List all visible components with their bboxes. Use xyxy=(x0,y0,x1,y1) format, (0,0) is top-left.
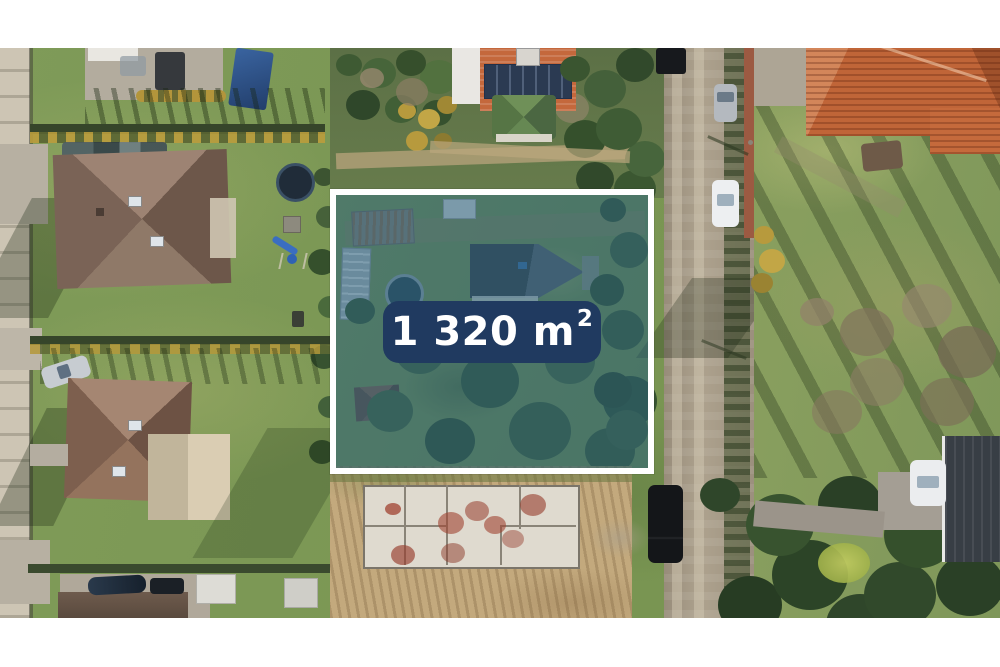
slab-wall-line xyxy=(500,525,576,527)
slab-wall-line xyxy=(519,485,521,529)
plot-area-exponent: 2 xyxy=(577,306,594,332)
house-roof xyxy=(53,149,232,289)
plot-area-label: 1 320 m 2 xyxy=(383,301,601,363)
skylight xyxy=(128,420,142,431)
tree-cluster xyxy=(560,56,590,82)
hedge xyxy=(28,564,332,573)
plot-area-value: 1 320 m xyxy=(391,309,575,355)
tile-roof-orange-wing xyxy=(930,108,1000,154)
bright-bush xyxy=(818,543,870,583)
aerial-photo: 1 320 m 2 xyxy=(0,48,1000,618)
gravel-patch xyxy=(590,518,650,558)
play-dome xyxy=(287,254,297,264)
garden-shed xyxy=(861,140,904,172)
paved-pad xyxy=(754,48,808,106)
gazebo-base xyxy=(496,134,552,142)
dark-roof-house xyxy=(942,436,1000,562)
patio-furniture xyxy=(120,56,146,76)
walkway xyxy=(30,444,68,466)
parked-car-dark xyxy=(150,578,184,594)
foundation-slab xyxy=(363,485,580,569)
car-windshield xyxy=(717,92,734,102)
tree-cluster xyxy=(336,54,362,76)
parked-van-dark xyxy=(656,48,686,74)
slab-stains xyxy=(385,503,401,515)
garden-gazebo xyxy=(155,52,185,90)
skylight xyxy=(150,236,164,247)
bare-trees xyxy=(360,68,384,88)
trampoline xyxy=(276,163,315,202)
patio xyxy=(210,198,236,258)
car-windshield xyxy=(717,194,734,206)
slab-wall-line xyxy=(365,525,448,527)
letterbox-top xyxy=(0,0,1000,48)
golden-bushes xyxy=(754,226,774,244)
slab-wall-line xyxy=(500,525,502,565)
tree-cluster-dark xyxy=(700,478,740,512)
garage-roof xyxy=(58,592,188,618)
house-wall xyxy=(452,48,482,104)
roof-dormer xyxy=(516,48,540,66)
parked-suv-black xyxy=(648,485,683,563)
sandbox xyxy=(283,216,301,233)
bare-trees xyxy=(800,298,834,326)
garden-bench xyxy=(292,311,304,327)
garden-shed xyxy=(284,578,318,608)
letterbox-bottom xyxy=(0,618,1000,667)
car-windshield xyxy=(917,476,939,488)
parked-car-silver xyxy=(714,84,737,122)
garden-shed xyxy=(196,574,236,604)
chimney xyxy=(96,208,104,216)
gazebo-roof-green xyxy=(492,95,556,139)
skylight xyxy=(112,466,126,477)
plot-boundary-overlay: 1 320 m 2 xyxy=(330,189,654,474)
patio-shadow xyxy=(148,434,188,520)
boat-on-trailer xyxy=(88,574,147,595)
golden-bushes xyxy=(398,103,416,119)
utility-pole xyxy=(748,140,753,145)
solar-panels xyxy=(484,64,572,99)
skylight xyxy=(128,196,142,207)
real-estate-listing-image: 1 320 m 2 xyxy=(0,0,1000,667)
